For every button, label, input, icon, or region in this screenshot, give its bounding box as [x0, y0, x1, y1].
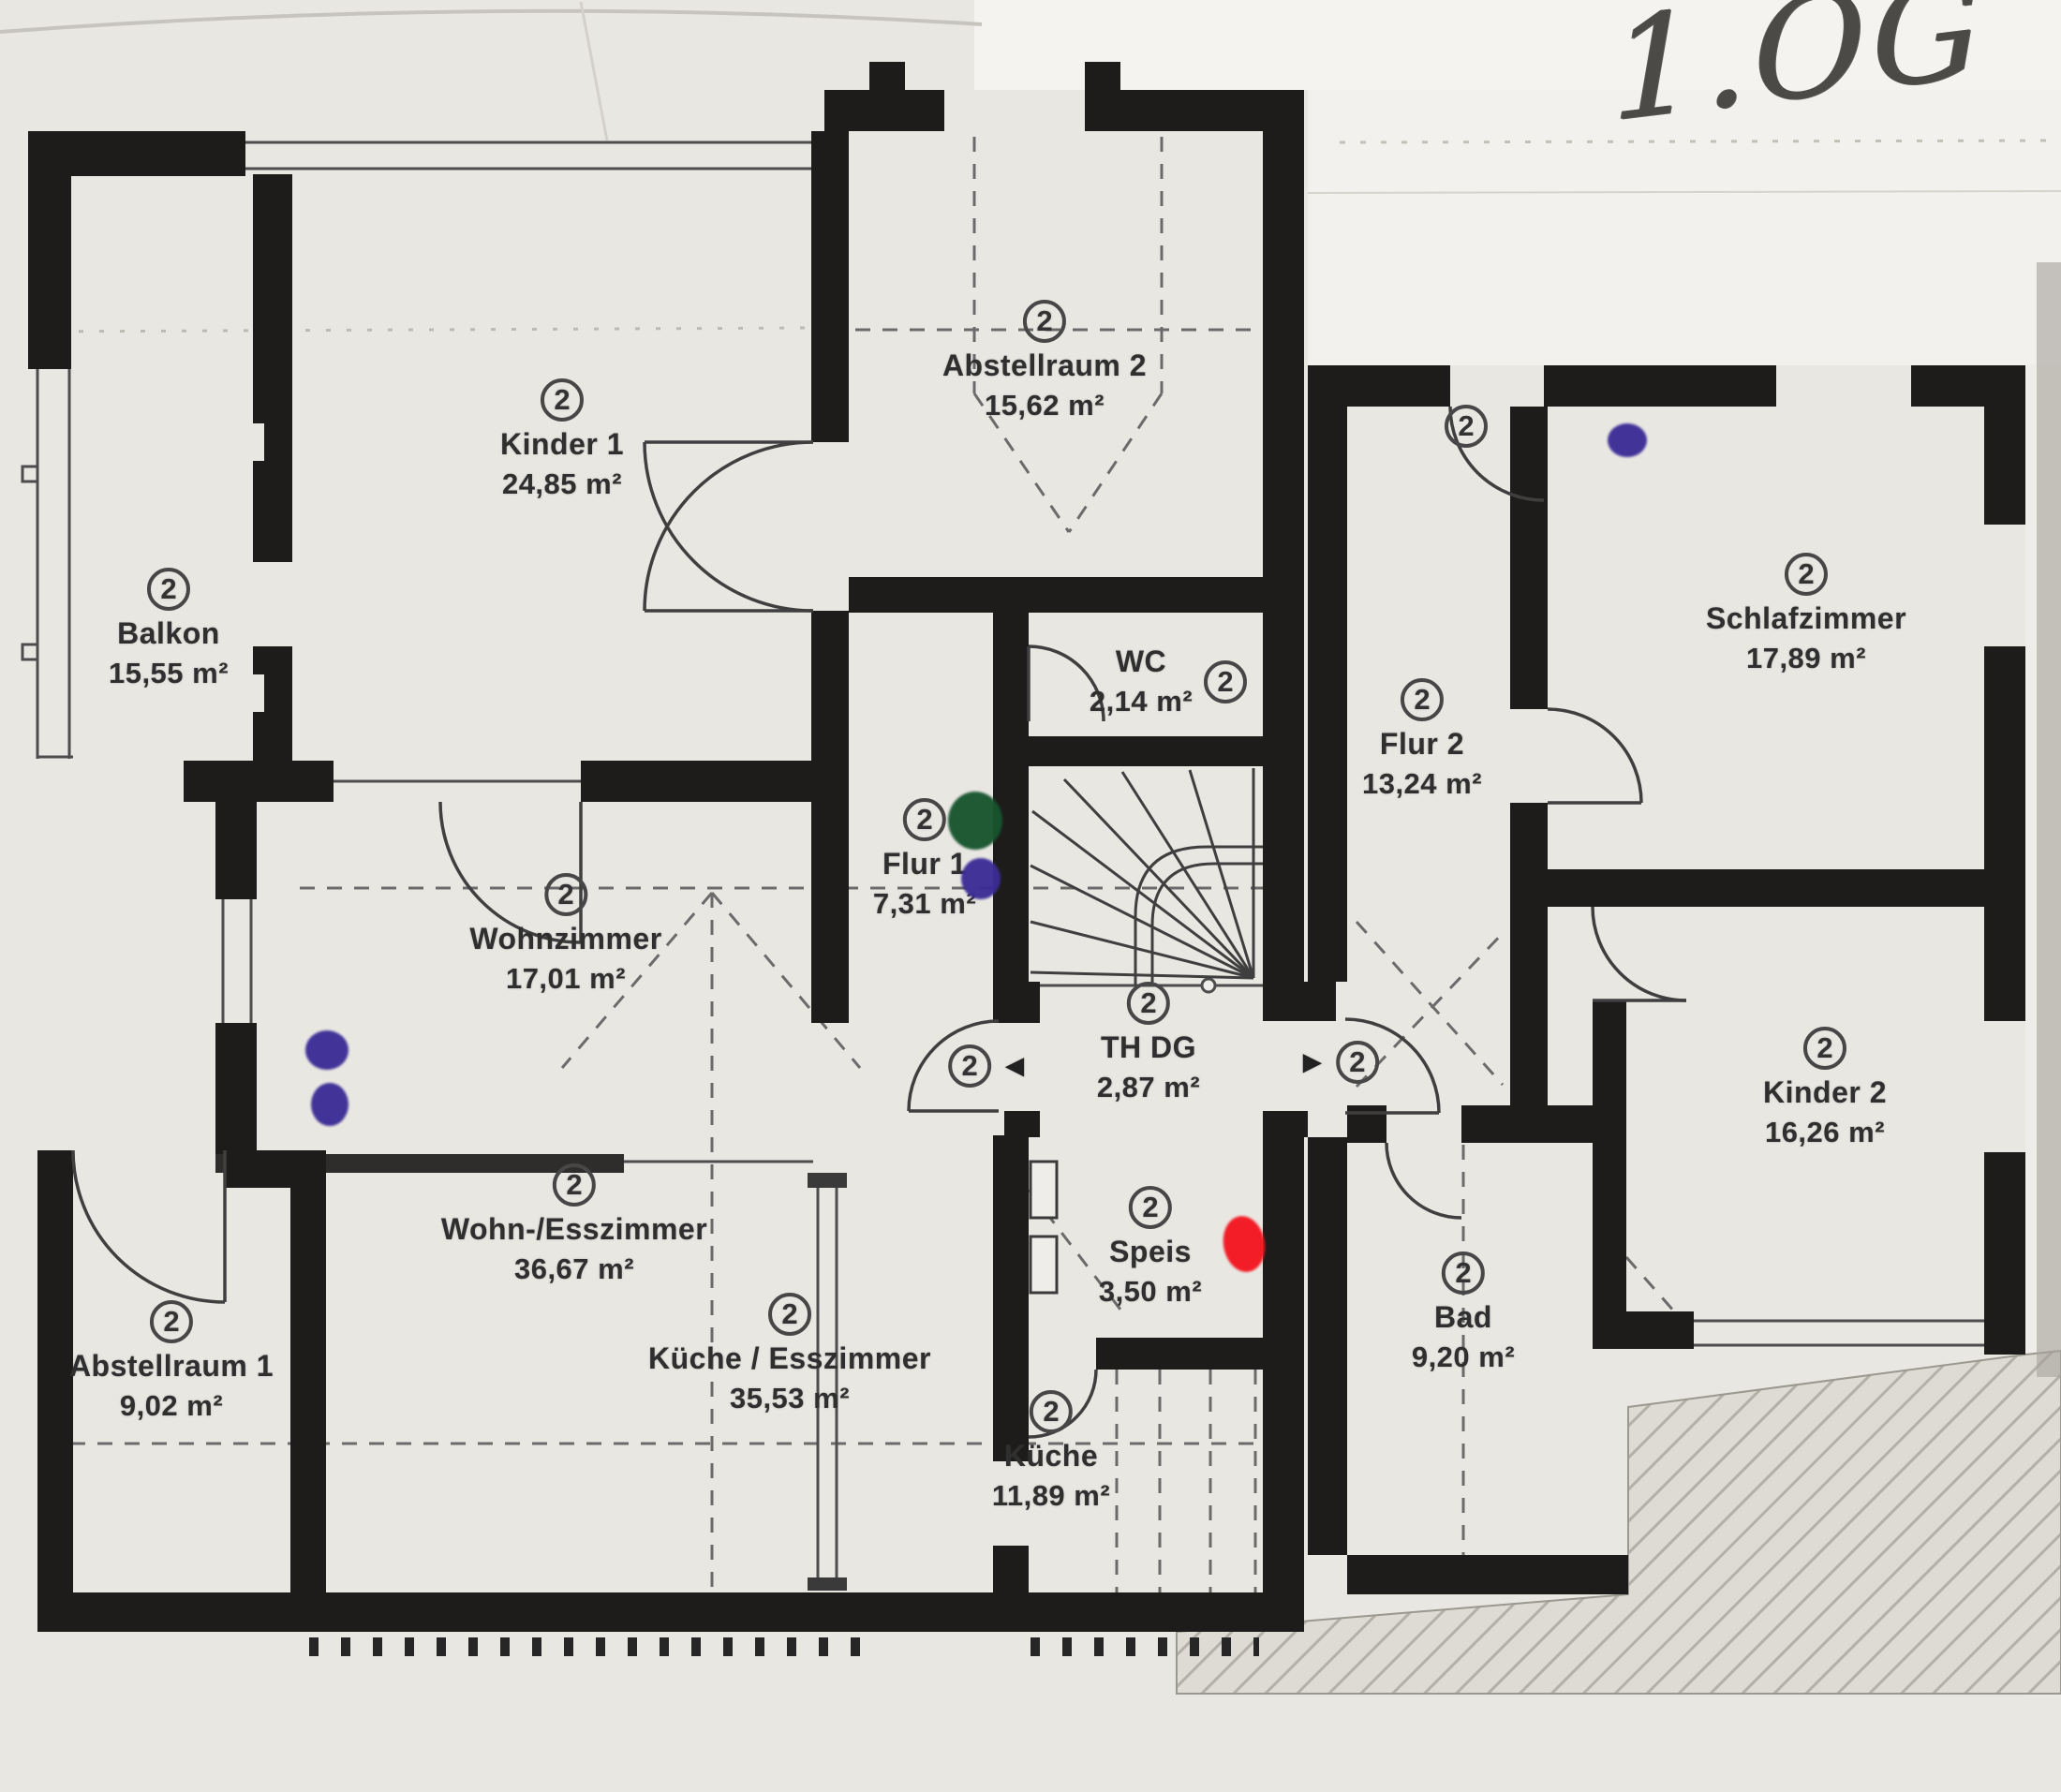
room-area: 2,87 m²: [1097, 1071, 1200, 1104]
room-label-th-dg: 2 TH DG 2,87 m²: [1097, 982, 1200, 1104]
stair-entry-marker-right: ► 2: [1297, 1041, 1379, 1084]
room-area: 15,62 m²: [942, 389, 1147, 422]
unit-badge: 2: [903, 798, 946, 841]
unit-badge: 2: [1030, 1390, 1073, 1433]
room-label-wohn-esszimmer: 2 Wohn-/Esszimmer 36,67 m²: [441, 1163, 707, 1286]
unit-badge: 2: [1129, 1186, 1172, 1229]
room-label-bad: 2 Bad 9,20 m²: [1412, 1251, 1515, 1374]
arrow-right-icon: ►: [1297, 1046, 1328, 1078]
room-area: 24,85 m²: [500, 467, 624, 501]
room-name: Abstellraum 2: [942, 348, 1147, 383]
unit-badge: 2: [1803, 1027, 1846, 1070]
room-name: Balkon: [109, 616, 229, 651]
unit-badge: 2: [1401, 678, 1444, 721]
room-area: 7,31 m²: [873, 887, 976, 921]
unit-badge: 2: [1023, 300, 1066, 343]
unit-badge: 2: [544, 873, 587, 916]
unit-badge: 2: [1785, 553, 1828, 596]
room-label-schlafzimmer: 2 Schlafzimmer 17,89 m²: [1706, 553, 1906, 675]
room-label-speis: 2 Speis 3,50 m²: [1099, 1186, 1202, 1309]
unit-badge: 2: [1127, 982, 1170, 1025]
room-label-kinder-1: 2 Kinder 1 24,85 m²: [500, 378, 624, 501]
floorplan-drawing: [0, 0, 2061, 1792]
room-name: Flur 2: [1362, 727, 1482, 762]
unit-badge: 2: [768, 1293, 811, 1336]
room-label-abstellraum-1: 2 Abstellraum 1 9,02 m²: [69, 1300, 274, 1423]
room-name: Wohnzimmer: [469, 922, 661, 956]
room-label-kueche-esszimmer: 2 Küche / Esszimmer 35,53 m²: [648, 1293, 931, 1415]
marker-dot-purple-wohnzimmer-2: [311, 1083, 348, 1126]
room-label-balkon: 2 Balkon 15,55 m²: [109, 568, 229, 690]
room-name: Wohn-/Esszimmer: [441, 1212, 707, 1247]
marker-dot-purple-flur1: [961, 858, 1001, 899]
floor-plan-page: 2 Kinder 1 24,85 m² 2 Balkon 15,55 m² 2 …: [0, 0, 2061, 1792]
room-label-abstellraum-2: 2 Abstellraum 2 15,62 m²: [942, 300, 1147, 422]
room-area: 9,20 m²: [1412, 1340, 1515, 1374]
room-name: Küche: [992, 1439, 1110, 1474]
room-area: 35,53 m²: [648, 1382, 931, 1415]
arrow-left-icon: ◄: [999, 1050, 1030, 1082]
stair-entry-marker-left: 2 ◄: [948, 1044, 1030, 1088]
room-label-kueche: 2 Küche 11,89 m²: [992, 1390, 1110, 1513]
room-name: Abstellraum 1: [69, 1349, 274, 1384]
unit-badge: 2: [541, 378, 584, 422]
entry-badge: 2: [1445, 405, 1488, 448]
room-label-flur-2: 2 Flur 2 13,24 m²: [1362, 678, 1482, 801]
room-name: Speis: [1099, 1235, 1202, 1269]
unit-badge: 2: [1336, 1041, 1379, 1084]
room-area: 9,02 m²: [69, 1389, 274, 1423]
room-name: WC: [1090, 644, 1193, 679]
room-area: 13,24 m²: [1362, 767, 1482, 801]
room-label-kinder-2: 2 Kinder 2 16,26 m²: [1763, 1027, 1887, 1149]
room-name: Schlafzimmer: [1706, 601, 1906, 636]
room-name: Bad: [1412, 1300, 1515, 1335]
room-area: 36,67 m²: [441, 1252, 707, 1286]
room-name: Kinder 2: [1763, 1075, 1887, 1110]
room-label-wohnzimmer: 2 Wohnzimmer 17,01 m²: [469, 873, 661, 996]
unit-badge: 2: [147, 568, 190, 611]
unit-badge: 2: [150, 1300, 193, 1343]
room-area: 3,50 m²: [1099, 1275, 1202, 1309]
room-area: 11,89 m²: [992, 1479, 1110, 1513]
marker-dot-purple-wohnzimmer-1: [305, 1030, 348, 1070]
room-area: 16,26 m²: [1763, 1116, 1887, 1149]
room-label-wc: WC 2,14 m²: [1090, 639, 1193, 718]
room-area: 15,55 m²: [109, 657, 229, 690]
room-name: Kinder 1: [500, 427, 624, 462]
marker-dot-green-flur1: [948, 792, 1002, 850]
room-name: TH DG: [1097, 1030, 1200, 1065]
room-name: Küche / Esszimmer: [648, 1341, 931, 1376]
marker-dot-purple-schlafzimmer: [1608, 423, 1647, 457]
unit-badge: 2: [1442, 1251, 1485, 1295]
unit-badge-wc: 2: [1204, 660, 1247, 703]
unit-badge: 2: [553, 1163, 596, 1207]
room-area: 17,01 m²: [469, 962, 661, 996]
room-area: 2,14 m²: [1090, 685, 1193, 718]
unit-badge: 2: [948, 1044, 991, 1088]
room-area: 17,89 m²: [1706, 642, 1906, 675]
